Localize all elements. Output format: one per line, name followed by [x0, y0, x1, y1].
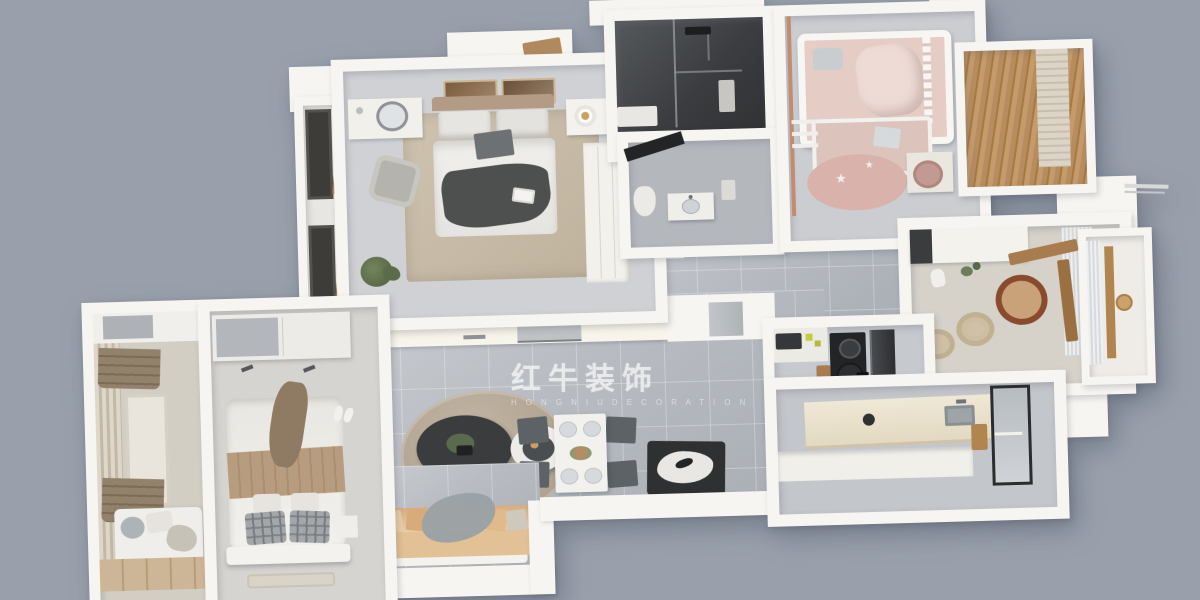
vanity-cabinet — [667, 192, 714, 220]
island-counter — [804, 394, 996, 450]
master-bed — [432, 94, 558, 237]
tea-plant — [961, 266, 973, 276]
small-pillow — [253, 494, 281, 513]
toilet — [633, 186, 656, 217]
window-frame-dark — [305, 109, 334, 200]
dining-chair — [606, 460, 638, 488]
white-deco — [930, 268, 947, 288]
ceiling-spotlight — [241, 364, 254, 372]
fridge-silver — [709, 302, 744, 337]
dressing-desk — [348, 97, 423, 139]
cushion-dark — [473, 129, 514, 160]
magazine — [512, 187, 536, 204]
sliding-wardrobe — [212, 312, 351, 362]
green-jar — [815, 340, 821, 346]
star-decal: ★ — [865, 160, 874, 171]
sofa-pillow — [505, 509, 527, 531]
kids-balcony — [954, 39, 1096, 197]
bunk-ladder — [791, 111, 818, 154]
tall-dark-cabinet — [910, 229, 933, 264]
ceiling-spotlight — [303, 365, 316, 373]
wardrobe-seam — [282, 317, 284, 355]
door-mullion — [994, 432, 1022, 436]
rattan-pouf — [956, 312, 995, 347]
second-bed — [226, 396, 347, 571]
lower-cabinet-band — [778, 446, 974, 481]
gray-roller-panel — [103, 315, 154, 339]
balcony-top-shelf — [93, 311, 200, 344]
nightstand — [566, 98, 611, 135]
tv — [517, 324, 581, 343]
sink — [944, 405, 975, 426]
fridge-nook — [666, 293, 775, 342]
star-rug: ★ ★ — [806, 153, 908, 212]
hanging-basket — [1115, 294, 1132, 311]
plate — [584, 468, 602, 484]
shower-hose — [707, 34, 710, 60]
throw — [165, 523, 199, 554]
bedside-rug — [247, 572, 335, 588]
wardrobe-seam — [611, 146, 616, 278]
faucet — [956, 399, 966, 403]
flower-centerpiece — [570, 446, 592, 461]
plate — [583, 421, 601, 437]
small-pillow — [291, 492, 319, 511]
bathroom — [617, 127, 784, 259]
kitchen-glass-door — [990, 385, 1033, 486]
vanity-bottle — [356, 107, 363, 114]
art-bench — [647, 441, 725, 496]
tea-armchair — [992, 270, 1052, 329]
faucet — [689, 195, 693, 199]
cushion — [120, 516, 145, 539]
plaid-pillow — [244, 510, 286, 545]
second-bedroom — [197, 294, 398, 600]
wardrobe-seam — [597, 147, 602, 279]
abstract-art — [657, 451, 713, 483]
crib-pillow — [812, 48, 843, 71]
burner — [839, 338, 862, 359]
plate — [560, 468, 578, 484]
kitchen — [764, 370, 1070, 527]
towel — [718, 80, 735, 112]
cabinet-handle — [463, 335, 485, 340]
slipper — [342, 407, 355, 424]
balcony-side-panel — [1036, 48, 1071, 167]
table-tray — [456, 445, 472, 455]
nightstand — [333, 515, 358, 538]
dining-chair — [517, 416, 549, 445]
kettle — [863, 413, 876, 426]
plaid-pillow — [289, 510, 330, 543]
tea-plant-sprig — [973, 262, 981, 270]
crib-blanket — [853, 40, 928, 120]
roman-blind — [98, 348, 161, 390]
wood-shelf — [971, 424, 988, 450]
crib-rail-slats — [922, 37, 932, 123]
wardrobe-glass-panel — [216, 318, 279, 358]
ceiling-beam — [624, 131, 685, 162]
bay-sheer-curtain — [1086, 241, 1103, 365]
lower-bed-pillow — [873, 126, 901, 149]
wood-sill — [1104, 246, 1116, 358]
headboard — [226, 544, 350, 565]
kitchen-upper-cabinets — [773, 327, 828, 362]
plate — [559, 421, 577, 437]
basin — [682, 199, 700, 214]
microwave — [775, 333, 801, 350]
star-decal: ★ — [835, 171, 847, 187]
tea-window-bay — [1078, 227, 1156, 385]
render-canvas: ★ ★ — [0, 0, 1200, 600]
dining-chair — [606, 416, 637, 443]
bath-accessory — [721, 180, 736, 200]
dining-table — [554, 413, 608, 492]
wall-under-dining — [540, 491, 776, 522]
shower-ledge — [617, 106, 658, 127]
apartment-floorplan: ★ ★ — [0, 0, 1200, 600]
glass-partition — [674, 69, 742, 73]
green-jar — [805, 334, 812, 341]
wood-platform — [99, 557, 206, 592]
vanity-mirror — [376, 101, 409, 132]
